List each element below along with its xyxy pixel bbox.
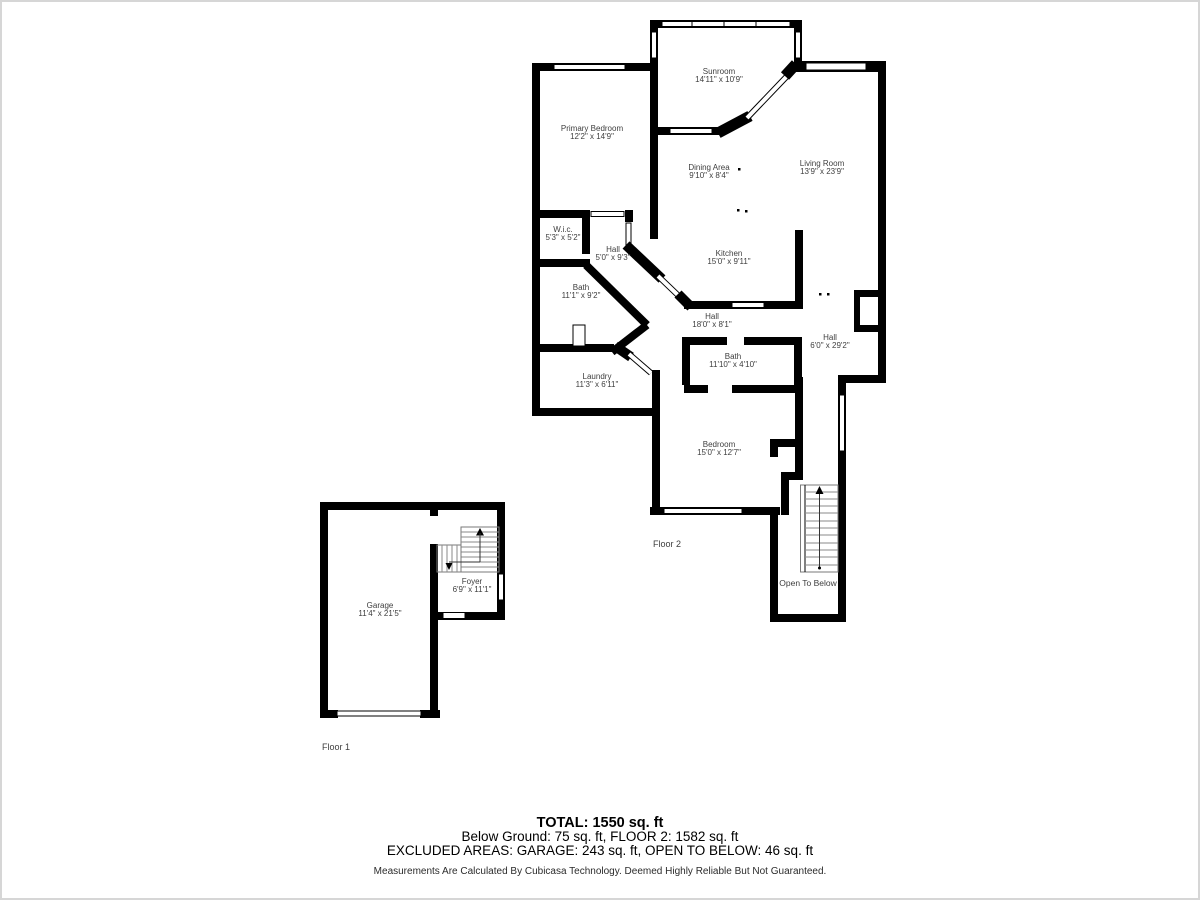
room-label-laundry: Laundry 11'3" x 6'11" (576, 373, 619, 389)
room-label-living-room: Living Room 13'9" x 23'9" (800, 160, 844, 176)
room-dims: 9'10" x 8'4" (688, 172, 729, 180)
room-label-dining-area: Dining Area 9'10" x 8'4" (688, 164, 729, 180)
room-dims: 13'9" x 23'9" (800, 168, 844, 176)
floor1-stairs (437, 527, 499, 572)
floor-areas-text: Below Ground: 75 sq. ft, FLOOR 2: 1582 s… (2, 830, 1198, 844)
area-summary: TOTAL: 1550 sq. ft Below Ground: 75 sq. … (2, 816, 1198, 878)
room-dims: 5'0" x 9'3" (596, 254, 631, 262)
room-label-primary-bedroom: Primary Bedroom 12'2" x 14'9" (561, 125, 623, 141)
room-dims: 11'4" x 21'5" (358, 610, 401, 618)
room-label-open-to-below: Open To Below (779, 578, 837, 588)
total-area-text: TOTAL: 1550 sq. ft (2, 816, 1198, 830)
room-dims: 15'0" x 12'7" (697, 449, 741, 457)
room-dims: 18'0" x 8'1" (692, 321, 731, 329)
room-label-wic: W.i.c. 5'3" x 5'2" (546, 226, 581, 242)
floor1-label: Floor 1 (322, 742, 350, 752)
room-label-bath-small: Bath 11'10" x 4'10" (709, 353, 757, 369)
room-dims: 14'11" x 10'9" (695, 76, 743, 84)
plan-dots (737, 168, 830, 296)
room-dims: 12'2" x 14'9" (561, 133, 623, 141)
room-label-garage: Garage 11'4" x 21'5" (358, 602, 401, 618)
room-dims: 6'0" x 29'2" (810, 342, 849, 350)
room-dims: 11'10" x 4'10" (709, 361, 757, 369)
room-label-kitchen: Kitchen 15'0" x 9'11" (707, 250, 750, 266)
floor2-stairs (801, 485, 839, 572)
room-label-hall-small: Hall 5'0" x 9'3" (596, 246, 631, 262)
excluded-areas-text: EXCLUDED AREAS: GARAGE: 243 sq. ft, OPEN… (2, 844, 1198, 858)
room-label-hall-right: Hall 6'0" x 29'2" (810, 334, 849, 350)
room-dims: 15'0" x 9'11" (707, 258, 750, 266)
room-label-bath-main: Bath 11'1" x 9'2" (562, 284, 601, 300)
room-dims: 5'3" x 5'2" (546, 234, 581, 242)
room-dims: 11'1" x 9'2" (562, 292, 601, 300)
floorplan-page: Sunroom 14'11" x 10'9" Primary Bedroom 1… (0, 0, 1200, 900)
room-label-sunroom: Sunroom 14'11" x 10'9" (695, 68, 743, 84)
floor2-label: Floor 2 (653, 539, 681, 549)
room-dims: 11'3" x 6'11" (576, 381, 619, 389)
room-label-foyer: Foyer 6'9" x 11'1" (453, 578, 492, 594)
room-label-hall-center: Hall 18'0" x 8'1" (692, 313, 731, 329)
room-dims: 6'9" x 11'1" (453, 586, 492, 594)
disclaimer-text: Measurements Are Calculated By Cubicasa … (2, 866, 1198, 878)
room-label-bedroom: Bedroom 15'0" x 12'7" (697, 441, 741, 457)
